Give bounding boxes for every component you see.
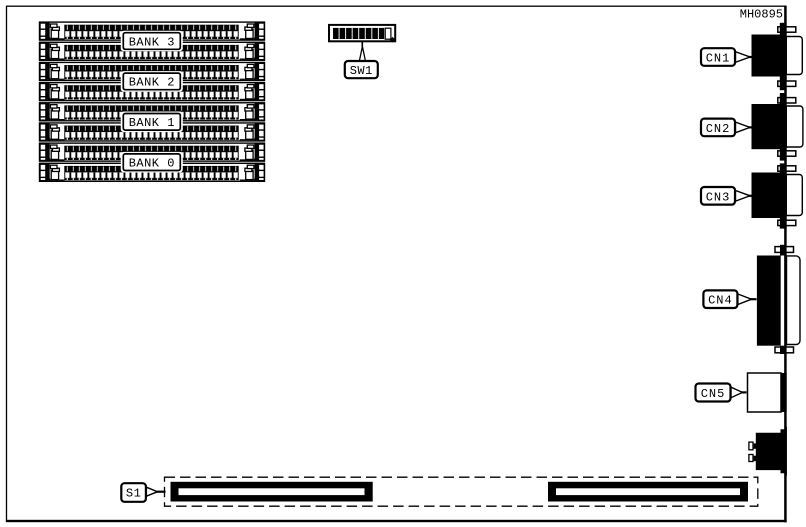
svg-text:MH0895: MH0895 <box>740 8 783 22</box>
svg-text:CN3: CN3 <box>706 190 731 204</box>
svg-text:BANK 1: BANK 1 <box>129 116 175 130</box>
svg-text:BANK 0: BANK 0 <box>129 157 175 171</box>
svg-text:BANK 2: BANK 2 <box>129 76 175 90</box>
svg-text:SW1: SW1 <box>350 64 373 78</box>
svg-text:CN1: CN1 <box>706 52 731 66</box>
svg-text:CN4: CN4 <box>708 294 733 308</box>
svg-text:BANK 3: BANK 3 <box>129 35 175 49</box>
svg-text:CN2: CN2 <box>706 122 731 136</box>
svg-text:CN5: CN5 <box>701 387 726 401</box>
svg-text:S1: S1 <box>126 487 141 501</box>
